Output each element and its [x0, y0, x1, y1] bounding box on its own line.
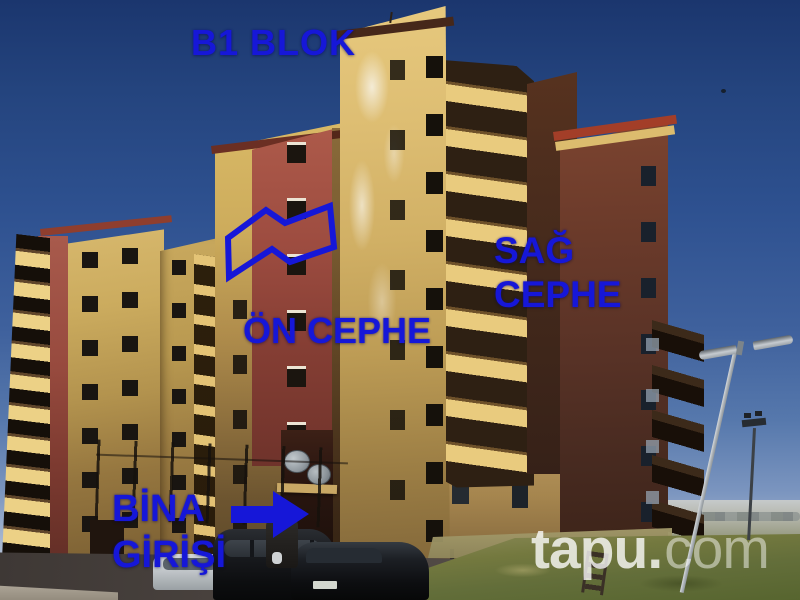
main-building-windows — [287, 142, 306, 462]
sedan-windshield — [306, 548, 382, 563]
watermark-brand-light: com — [664, 517, 769, 581]
front-facade-label: ÖN CEPHE — [243, 310, 431, 352]
right-facade-label: SAĞ CEPHE — [494, 229, 621, 317]
scooter — [266, 516, 298, 568]
watermark: tapu.com — [531, 521, 769, 578]
block-label: B1 BLOK — [191, 22, 356, 64]
floodlight-lamp — [744, 413, 751, 418]
entrance-label: BİNA GİRİŞİ — [112, 486, 226, 578]
watermark-brand-bold: tapu. — [531, 517, 662, 581]
right-facade-label-line1: SAĞ — [494, 229, 621, 273]
tower-windows — [390, 60, 405, 550]
entrance-label-line2: GİRİŞİ — [112, 532, 226, 578]
tower-windows — [426, 56, 443, 551]
entrance-label-line1: BİNA — [112, 486, 226, 532]
license-plate — [313, 581, 337, 589]
listing-photo: tapu.com B1 BLOK ÖN CEPHE SAĞ CEPHE BİNA… — [0, 0, 800, 600]
rear-tower-window-glints — [646, 338, 659, 533]
right-facade-label-line2: CEPHE — [494, 273, 621, 317]
bird-speck — [721, 89, 726, 93]
scooter-fender — [272, 552, 282, 564]
floodlight-lamp — [755, 411, 762, 416]
